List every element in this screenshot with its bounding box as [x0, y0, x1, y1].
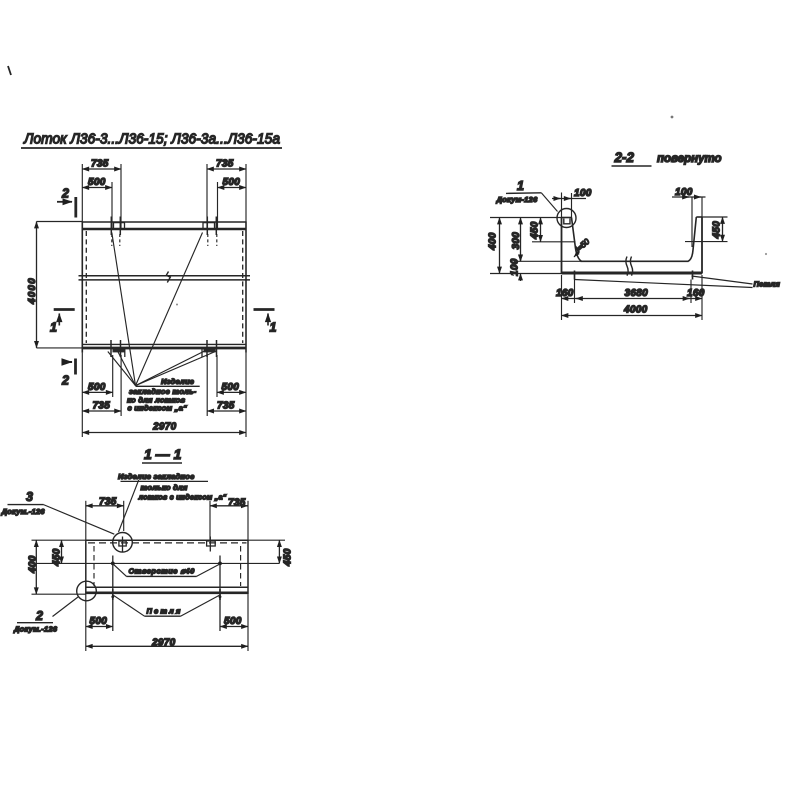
svg-text:Изделие закладное: Изделие закладное	[118, 472, 195, 481]
svg-text:160: 160	[556, 288, 574, 299]
svg-text:Докум.-126: Докум.-126	[1, 507, 46, 516]
svg-text:450: 450	[283, 548, 294, 567]
svg-text:100: 100	[510, 258, 521, 276]
svg-text:500: 500	[222, 382, 240, 393]
svg-text:100: 100	[574, 188, 592, 199]
svg-text:450: 450	[530, 221, 541, 240]
svg-text:2970: 2970	[152, 422, 177, 433]
svg-text:2: 2	[61, 374, 69, 388]
svg-text:2: 2	[61, 187, 69, 201]
svg-text:Петля: Петля	[147, 607, 181, 616]
svg-text:735: 735	[93, 401, 111, 412]
svg-text:735: 735	[99, 497, 117, 508]
svg-text:400: 400	[488, 232, 499, 251]
svg-text:735: 735	[228, 498, 246, 509]
svg-text:500: 500	[88, 177, 106, 188]
svg-text:только для: только для	[141, 483, 188, 492]
svg-text:4000: 4000	[623, 305, 648, 316]
svg-text:1: 1	[270, 321, 277, 335]
svg-text:3: 3	[26, 490, 33, 504]
svg-text:500: 500	[223, 177, 241, 188]
svg-text:735: 735	[91, 159, 109, 170]
svg-text:735: 735	[217, 401, 235, 412]
svg-text:Отверстие ⌀40: Отверстие ⌀40	[129, 567, 196, 576]
svg-text:1 — 1: 1 — 1	[144, 446, 182, 462]
svg-text:500: 500	[90, 616, 108, 627]
svg-text:450: 450	[712, 221, 723, 240]
svg-text:500: 500	[224, 616, 242, 627]
svg-text:повернуто: повернуто	[657, 153, 722, 165]
svg-text:Докум-126: Докум-126	[496, 195, 538, 204]
svg-text:1: 1	[517, 179, 524, 193]
svg-text:лотков с индексом „а“: лотков с индексом „а“	[138, 493, 227, 502]
svg-text:1: 1	[50, 321, 57, 335]
svg-text:450: 450	[52, 548, 63, 567]
svg-text:4000: 4000	[27, 278, 38, 305]
svg-text:i=50: i=50	[574, 237, 592, 254]
svg-text:160: 160	[687, 288, 705, 299]
svg-text:2: 2	[35, 609, 43, 623]
svg-text:300: 300	[511, 232, 522, 250]
svg-text:3680: 3680	[625, 288, 649, 299]
svg-text:100: 100	[675, 187, 693, 198]
svg-text:Докум.-126: Докум.-126	[13, 625, 58, 634]
svg-text:400: 400	[28, 555, 39, 574]
svg-text:Изделие: Изделие	[161, 377, 195, 386]
svg-text:с индексом „а“: с индексом „а“	[128, 403, 188, 412]
svg-text:2-2: 2-2	[614, 150, 635, 165]
svg-text:735: 735	[216, 159, 234, 170]
svg-text:Петля: Петля	[754, 280, 781, 289]
svg-text:Лоток Л36-3...Л36-15; Л36-3а.: Лоток Л36-3...Л36-15; Л36-3а...Л36-15а	[23, 131, 280, 148]
svg-text:2970: 2970	[151, 637, 176, 648]
svg-text:500: 500	[88, 382, 106, 393]
